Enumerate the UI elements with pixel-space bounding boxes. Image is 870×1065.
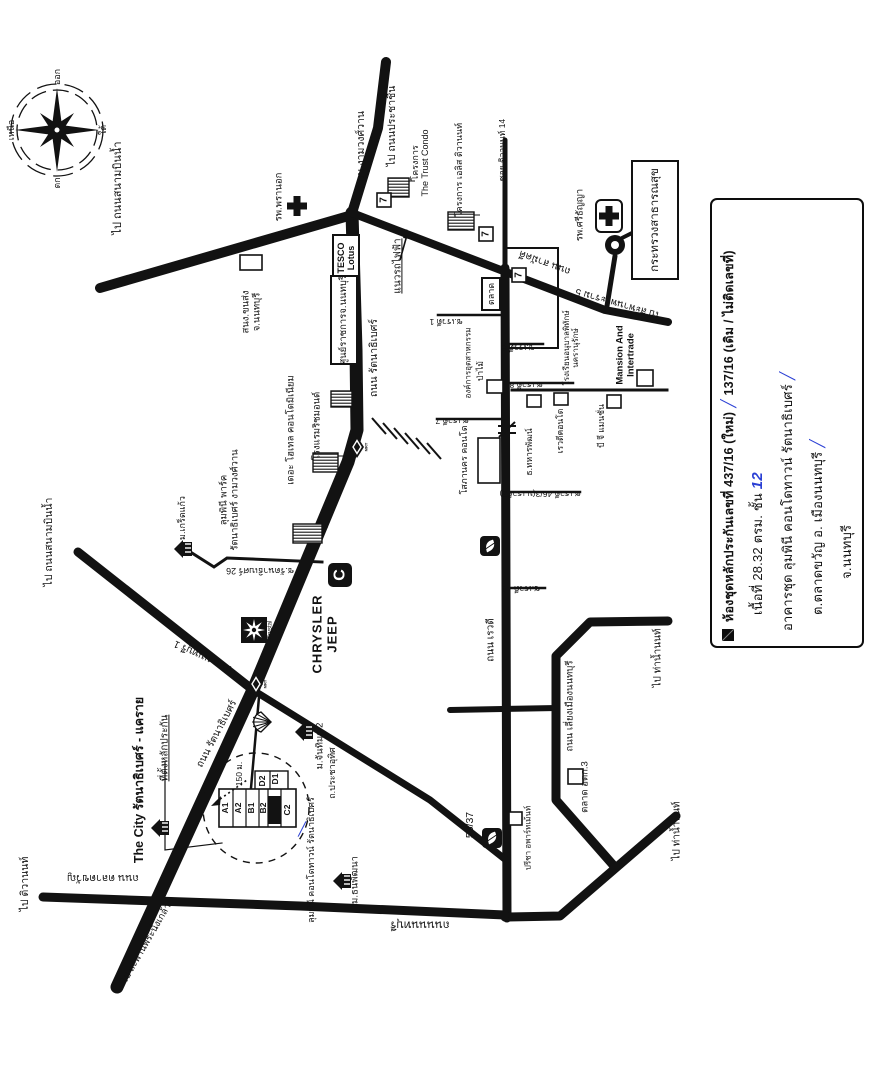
central-c-logo-icon: C bbox=[328, 563, 352, 587]
scanned-map-page: 777MRTMRTCไป ถนนสนามบินน้ำรพ.พรานอกถนน ง… bbox=[0, 0, 870, 1065]
road bbox=[556, 621, 668, 866]
railway-hatch bbox=[383, 423, 397, 439]
road bbox=[505, 268, 507, 918]
legend-unit-number: ห้องชุดหลักประกันเลขที่ 437/16 (ใหม่) bbox=[722, 412, 736, 622]
condo-unit-blocks bbox=[219, 771, 296, 827]
gas-station-leaf-icon bbox=[480, 536, 500, 556]
legend-line-4: ต.ตลาดขวัญ อ. เมืองนนทบุรี╱ bbox=[807, 203, 828, 615]
road bbox=[352, 62, 386, 213]
road bbox=[117, 213, 357, 987]
seven-eleven-icon: 7 bbox=[512, 268, 526, 282]
handwritten-tick-icon: ╱ bbox=[779, 371, 795, 380]
village-icon bbox=[174, 540, 192, 558]
svg-text:C: C bbox=[332, 569, 349, 581]
svg-text:7: 7 bbox=[379, 197, 390, 203]
rail-direction-arrow bbox=[400, 235, 407, 260]
building-square bbox=[509, 812, 522, 825]
building-square bbox=[527, 395, 541, 407]
seven-eleven-icon: 7 bbox=[377, 193, 391, 207]
legend-line-5: จ.นนทบุรี bbox=[836, 203, 857, 579]
city-block-outline bbox=[506, 248, 558, 348]
road bbox=[78, 552, 253, 690]
railway-hatch bbox=[416, 438, 430, 454]
railway-hatch bbox=[394, 428, 408, 444]
village-icon bbox=[151, 819, 169, 837]
hospital-cross-icon bbox=[596, 200, 622, 232]
svg-text:MRT: MRT bbox=[364, 442, 369, 451]
building-square bbox=[637, 370, 653, 386]
legend-old-number: 137/16 (เดิม / ไม่ติดเลขที่) bbox=[722, 250, 736, 395]
legend-building: อาคารชุด ลุมพินี คอนโดทาวน์ รัตนาธิเบศร์ bbox=[780, 384, 795, 631]
legend-black-square-icon bbox=[722, 629, 734, 641]
condo-building-icon bbox=[388, 178, 415, 197]
legend-text-block: ห้องชุดหลักประกันเลขที่ 437/16 (ใหม่)╱ 1… bbox=[717, 203, 859, 641]
road bbox=[607, 256, 615, 306]
svg-text:MRT: MRT bbox=[263, 679, 268, 688]
condo-building-icon bbox=[448, 212, 480, 230]
building-square bbox=[240, 255, 262, 270]
road bbox=[253, 690, 506, 860]
railway-hatch bbox=[427, 443, 441, 459]
legend-line-3: อาคารชุด ลุมพินี คอนโดทาวน์ รัตนาธิเบศร์… bbox=[777, 203, 798, 631]
building-square bbox=[607, 395, 621, 408]
handwritten-tick-icon: ╱ bbox=[720, 399, 736, 408]
road bbox=[100, 215, 352, 288]
roundabout-icon bbox=[605, 235, 625, 255]
road bbox=[505, 816, 676, 917]
svg-text:7: 7 bbox=[514, 272, 525, 278]
railway-hatch bbox=[405, 433, 419, 449]
legend-line-2: เนื้อที่ 28.32 ตรม. ชั้น 12 bbox=[747, 203, 768, 615]
building-square bbox=[554, 393, 568, 405]
road bbox=[622, 230, 638, 238]
legend-line-1: ห้องชุดหลักประกันเลขที่ 437/16 (ใหม่)╱ 1… bbox=[719, 203, 739, 641]
compass-rose-icon bbox=[11, 84, 103, 176]
legend-province: จ.นนทบุรี bbox=[839, 525, 854, 579]
handwritten-floor-number: 12 bbox=[749, 472, 766, 489]
building-square bbox=[478, 438, 500, 483]
road bbox=[450, 708, 557, 710]
building-square bbox=[568, 769, 583, 784]
collateral-unit-filled bbox=[268, 796, 281, 824]
legend-area: เนื้อที่ 28.32 ตรม. ชั้น bbox=[750, 493, 765, 615]
village-icon bbox=[295, 723, 313, 741]
seven-eleven-icon: 7 bbox=[479, 227, 493, 241]
hospital-cross-icon bbox=[287, 196, 307, 216]
gas-station-leaf-icon bbox=[482, 828, 502, 848]
building-square bbox=[487, 380, 503, 393]
arrow-head-icon bbox=[211, 796, 221, 806]
crystal-logo-icon bbox=[241, 617, 267, 643]
legend-district: ต.ตลาดขวัญ อ. เมืองนนทบุรี bbox=[810, 452, 825, 615]
svg-text:7: 7 bbox=[481, 231, 492, 237]
shell-station-icon bbox=[252, 712, 271, 732]
road bbox=[43, 897, 505, 915]
handwritten-tick-icon: ╱ bbox=[809, 439, 825, 448]
railway-hatch bbox=[372, 418, 386, 434]
village-icon bbox=[333, 872, 351, 890]
legend-box: ห้องชุดหลักประกันเลขที่ 437/16 (ใหม่)╱ 1… bbox=[710, 198, 864, 648]
